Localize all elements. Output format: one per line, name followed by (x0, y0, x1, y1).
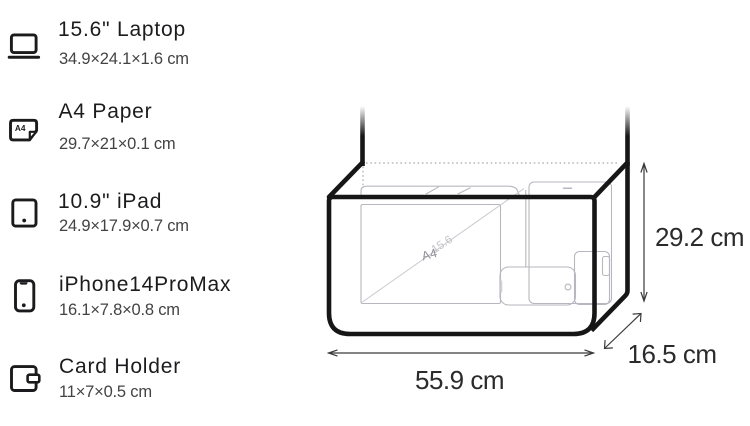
svg-text:15.6: 15.6 (430, 234, 455, 256)
